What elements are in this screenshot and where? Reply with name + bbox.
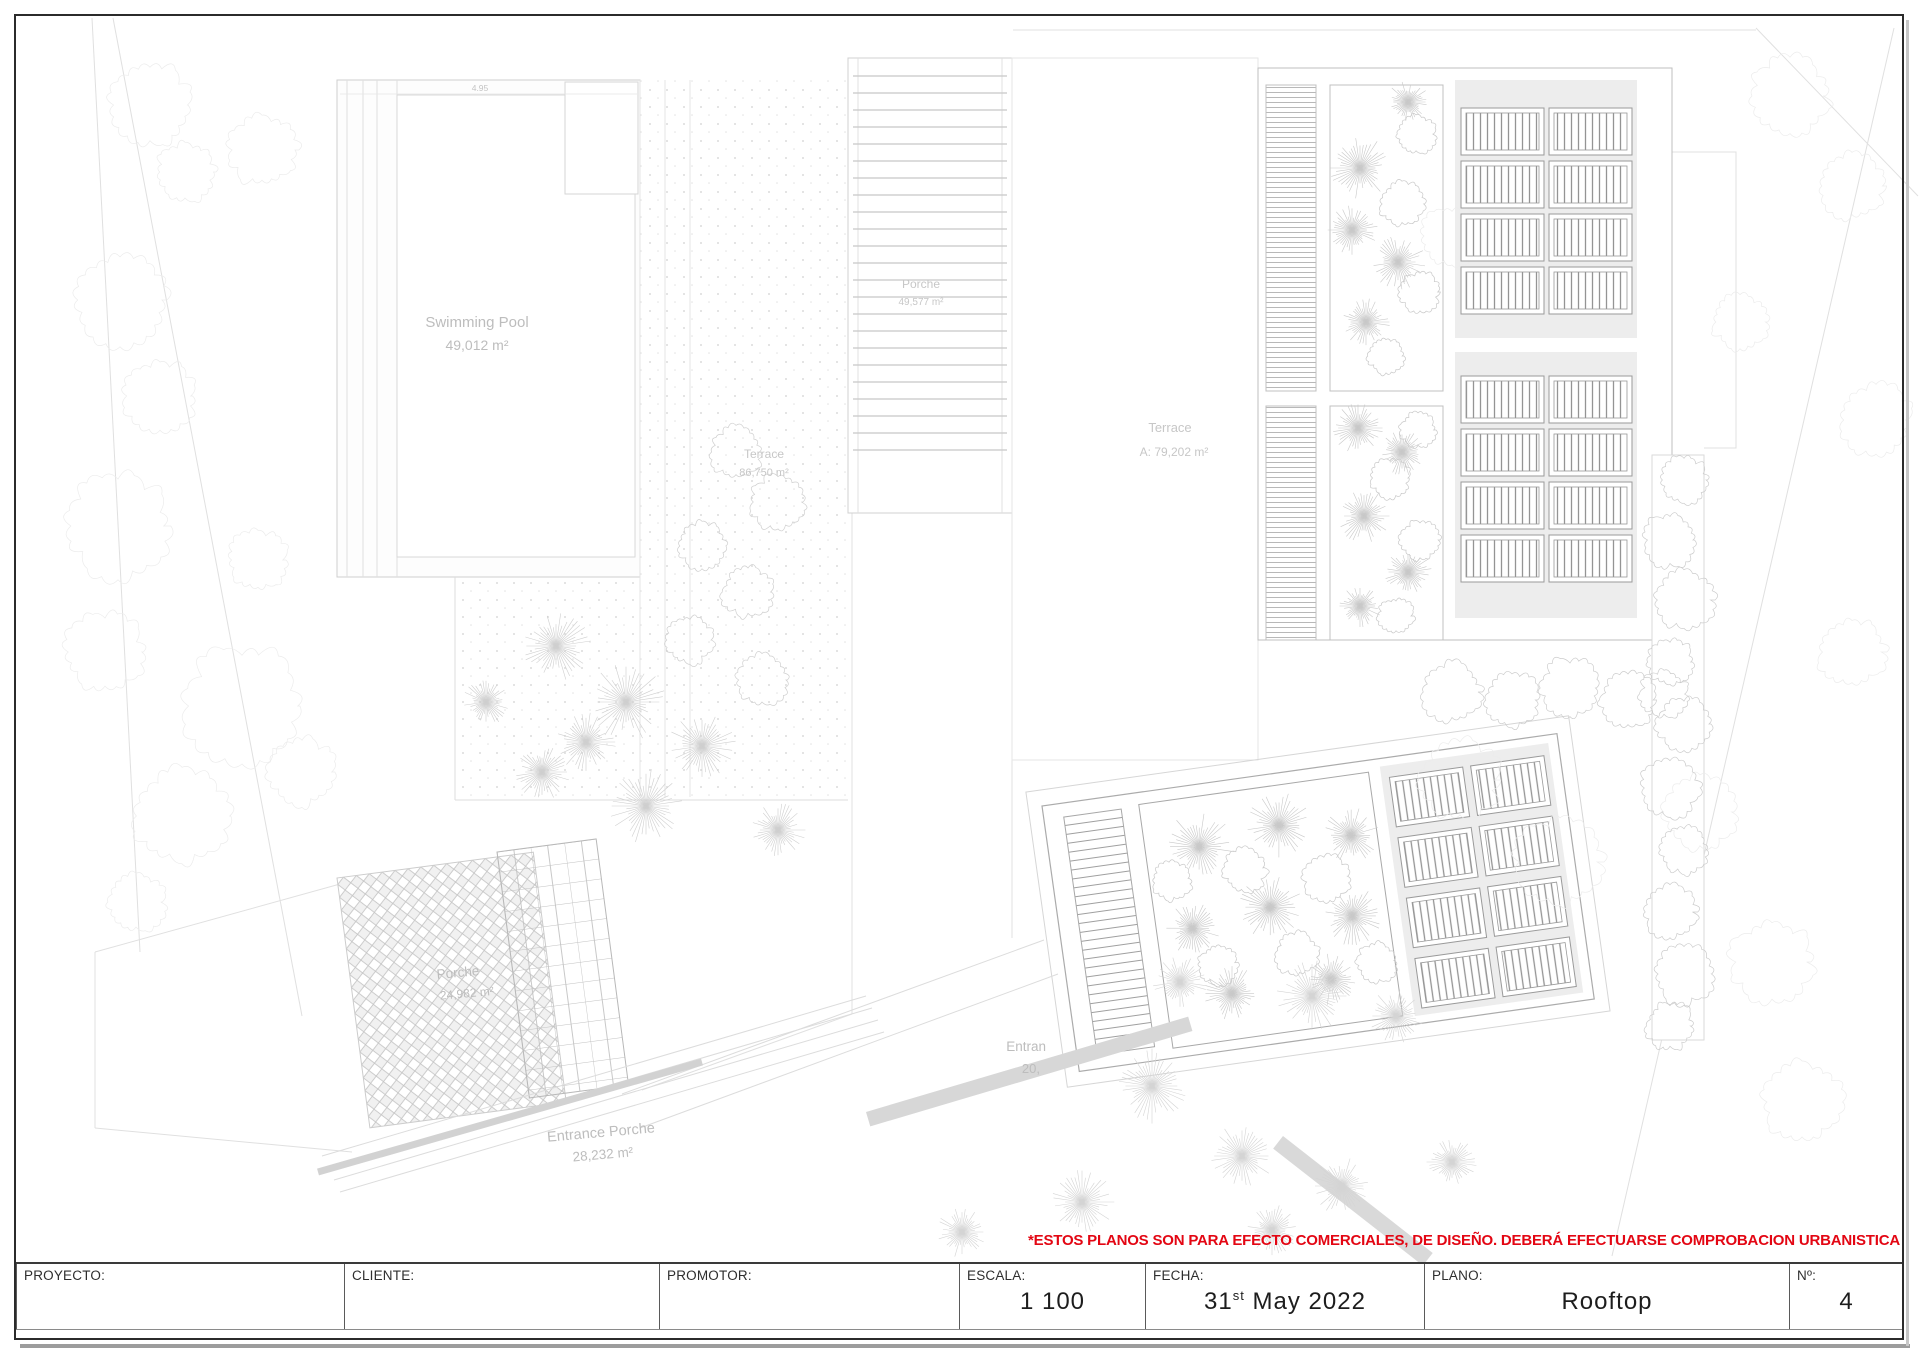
titleblock-cell-fecha: FECHA: 31st May 2022 (1146, 1264, 1425, 1329)
plano-value: Rooftop (1561, 1288, 1652, 1316)
fecha-value: 31st May 2022 (1204, 1288, 1366, 1316)
cliente-label: CLIENTE: (352, 1268, 414, 1283)
entrance-partial-name: Entran (1006, 1039, 1046, 1054)
titleblock-cell-cliente: CLIENTE: (345, 1264, 660, 1329)
title-block: PROYECTO: CLIENTE: PROMOTOR: ESCALA: 1 1… (16, 1262, 1904, 1330)
plano-label: PLANO: (1432, 1268, 1483, 1283)
swimming-pool-name: Swimming Pool (425, 314, 528, 331)
rotated-roof-block (1026, 716, 1610, 1087)
terrace-left-name: Terrace (744, 447, 784, 461)
porch-top-name: Porche (902, 277, 940, 291)
frame-shadow-bottom (20, 1344, 1910, 1348)
porch-top-area: 49,577 m² (898, 297, 944, 308)
green-roof-planter (1266, 85, 1316, 391)
entrance-porch-area: 28,232 m² (572, 1144, 634, 1164)
terrace-right-area (1012, 58, 1258, 760)
titleblock-cell-promotor: PROMOTOR: (660, 1264, 960, 1329)
titleblock-cell-numero: Nº: 4 (1790, 1264, 1904, 1329)
titleblock-cell-plano: PLANO: Rooftop (1425, 1264, 1790, 1329)
titleblock-cell-escala: ESCALA: 1 100 (960, 1264, 1146, 1329)
numero-label: Nº: (1797, 1268, 1816, 1283)
green-roof-planter (1266, 406, 1316, 640)
terrace-right-area: A: 79,202 m² (1140, 445, 1209, 459)
numero-value: 4 (1839, 1288, 1853, 1316)
pool-dimension: 4.95 (472, 83, 489, 93)
terrace-right-name: Terrace (1148, 420, 1191, 435)
fecha-label: FECHA: (1153, 1268, 1204, 1283)
legal-disclaimer: *ESTOS PLANOS SON PARA EFECTO COMERCIALE… (700, 1232, 1900, 1249)
swimming-pool-area: 49,012 m² (445, 337, 508, 353)
rooftop-plan-drawing: 4.95 (0, 0, 1920, 1358)
titleblock-cell-proyecto: PROYECTO: (16, 1264, 345, 1329)
entrance-porch-label: Entrance Porche 28,232 m² (547, 1120, 658, 1166)
frame-shadow-right (1906, 20, 1909, 1346)
entrance-partial-area: 20, (1022, 1061, 1040, 1076)
proyecto-label: PROYECTO: (24, 1268, 105, 1283)
entrance-porch-name: Entrance Porche (547, 1120, 656, 1145)
plan-sheet: 4.95 (0, 0, 1920, 1358)
terrace-left-area: 86,750 m² (739, 467, 789, 479)
promotor-label: PROMOTOR: (667, 1268, 752, 1283)
escala-value: 1 100 (1020, 1288, 1085, 1316)
escala-label: ESCALA: (967, 1268, 1025, 1283)
